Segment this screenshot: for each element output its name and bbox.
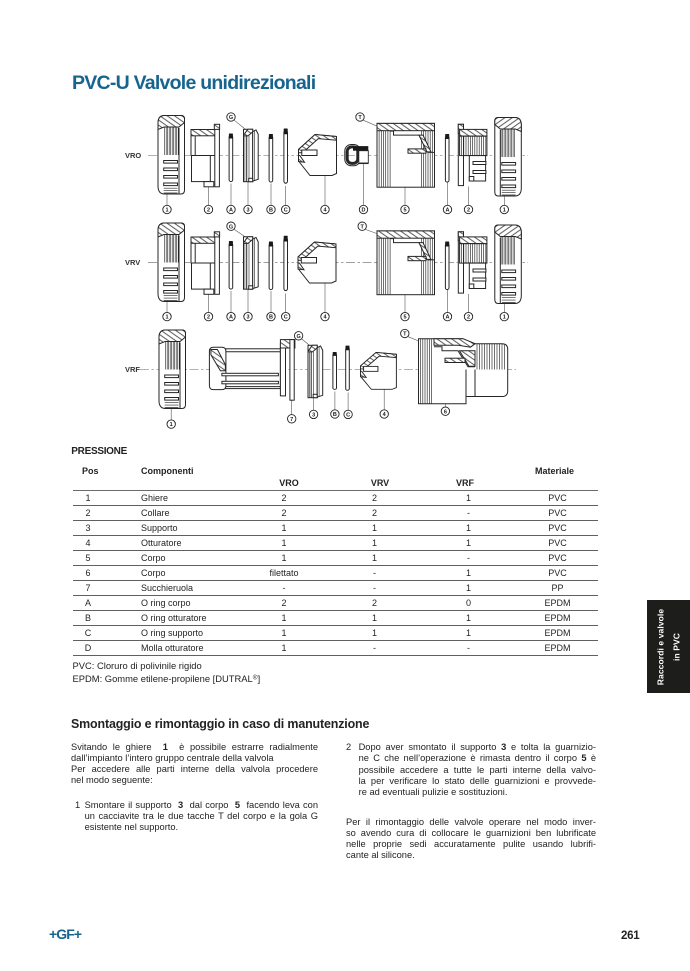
svg-text:C: C xyxy=(284,208,288,214)
svg-text:A: A xyxy=(229,208,233,214)
svg-text:2: 2 xyxy=(467,208,470,214)
svg-text:C: C xyxy=(346,413,350,419)
svg-text:C: C xyxy=(284,315,288,321)
svg-text:B: B xyxy=(333,412,337,418)
svg-text:B: B xyxy=(269,208,273,214)
svg-text:A: A xyxy=(446,208,450,214)
svg-text:3: 3 xyxy=(312,413,315,419)
svg-text:6: 6 xyxy=(444,409,447,415)
svg-text:1: 1 xyxy=(503,208,506,214)
svg-text:G: G xyxy=(296,334,300,340)
svg-text:A: A xyxy=(446,315,450,321)
svg-text:3: 3 xyxy=(246,208,249,214)
svg-text:B: B xyxy=(269,315,273,321)
svg-text:D: D xyxy=(362,208,366,214)
svg-text:2: 2 xyxy=(467,315,470,321)
svg-text:A: A xyxy=(229,315,233,321)
svg-text:1: 1 xyxy=(165,315,168,321)
svg-text:1: 1 xyxy=(165,208,168,214)
svg-text:2: 2 xyxy=(207,208,210,214)
svg-text:G: G xyxy=(229,224,233,230)
svg-text:G: G xyxy=(229,115,233,121)
svg-text:2: 2 xyxy=(207,315,210,321)
svg-text:1: 1 xyxy=(170,422,173,428)
svg-text:1: 1 xyxy=(503,315,506,321)
svg-text:5: 5 xyxy=(403,315,406,321)
svg-text:7: 7 xyxy=(290,417,293,423)
svg-text:5: 5 xyxy=(403,208,406,214)
svg-text:3: 3 xyxy=(246,315,249,321)
